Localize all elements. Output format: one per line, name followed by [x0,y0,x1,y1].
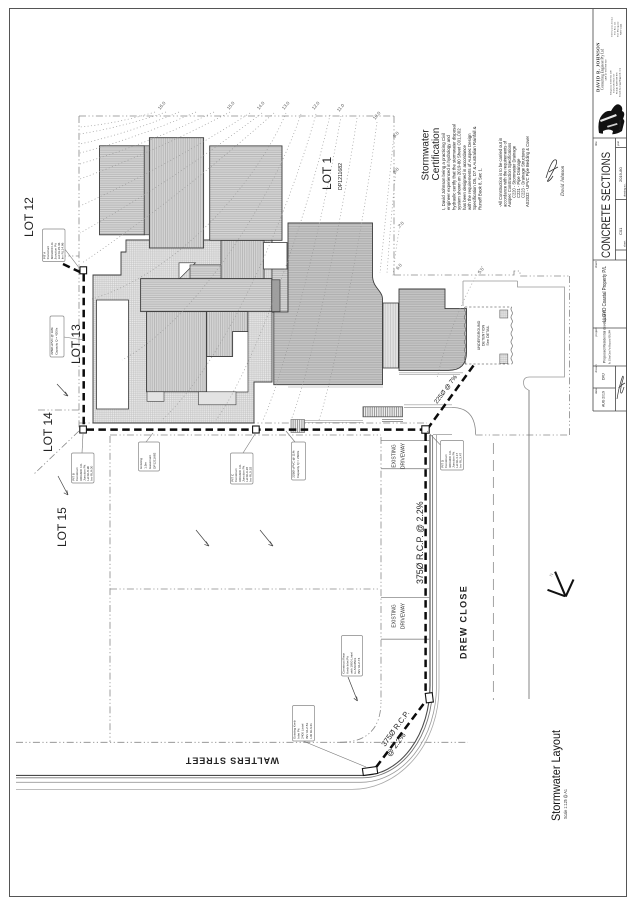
svg-text:title: title [594,141,598,146]
svg-text:Email drj.eng@bigpond.com: Email drj.eng@bigpond.com [619,68,622,97]
svg-text:LID RL3.41: LID RL3.41 [309,723,313,739]
svg-text:Stormwater Layout: Stormwater Layout [549,729,563,821]
svg-text:Easement: Easement [148,455,152,469]
svg-text:DREW CLOSE: DREW CLOSE [459,585,469,659]
svg-text:© Kazora: © Kazora [619,119,622,130]
svg-text:LOT 12: LOT 12 [22,197,36,237]
svg-text:WALTERS STREET: WALTERS STREET [185,756,279,766]
svg-text:DRIVEWAY: DRIVEWAY [401,602,407,629]
svg-text:Capacity Q = 420l/s: Capacity Q = 420l/s [54,327,58,355]
svg-text:Capacity Q = 260l/s: Capacity Q = 260l/s [296,450,300,478]
svg-text:sheet: sheet [623,240,627,247]
svg-text:Inv RL3.47: Inv RL3.47 [459,453,463,468]
svg-text:1.5m: 1.5m [144,461,148,468]
svg-text:Inv RL14.86: Inv RL14.86 [61,242,65,259]
svg-text:375Ø R.C.P. @ 2.2%: 375Ø R.C.P. @ 2.2% [415,501,425,584]
svg-text:year: year [616,141,620,146]
svg-text:David Johnson: David Johnson [561,165,566,197]
svg-text:No. 5 Drew Close, Port Macquar: No. 5 Drew Close, Port Macquarie, NSW, 2… [608,330,612,364]
svg-text:UNDERGROUND: UNDERGROUND [477,320,481,350]
svg-text:Stormwater: Stormwater [421,129,432,181]
svg-text:AS2032 - UPVC Pipe Bedding & C: AS2032 - UPVC Pipe Bedding & Cover [525,135,530,207]
svg-text:LOT 13: LOT 13 [69,324,83,364]
svg-text:AUG 2019: AUG 2019 [602,391,606,407]
svg-text:NSW 2444: NSW 2444 [620,23,623,35]
svg-text:See DETAIL: See DETAIL [486,325,490,345]
svg-text:LOT 15: LOT 15 [55,507,69,547]
svg-text:DRIVEWAY: DRIVEWAY [401,442,407,469]
svg-text:Existing: Existing [139,458,143,469]
svg-text:ABN 47 002 080 020: ABN 47 002 080 020 [605,59,608,81]
svg-text:project: project [594,327,598,336]
svg-text:EXISTING: EXISTING [392,444,398,467]
svg-text:C01: C01 [618,227,623,235]
svg-text:DP1211682: DP1211682 [153,452,157,468]
svg-text:DETENTION: DETENTION [482,325,486,347]
svg-text:CONCRETE SECTIONS: CONCRETE SECTIONS [599,152,613,258]
svg-text:225Ø uPVC @ 11%: 225Ø uPVC @ 11% [292,450,296,478]
svg-text:drawing no.: drawing no. [623,183,627,197]
svg-text:DRJ: DRJ [602,373,606,380]
svg-text:DP1211682: DP1211682 [338,163,344,190]
svg-text:Runoff Book 8, Sec 1.: Runoff Book 8, Sec 1. [477,168,482,210]
svg-text:client: client [594,261,598,268]
svg-text:INV RL2.73: INV RL2.73 [357,658,361,674]
svg-text:Scale 1:125 @ A1: Scale 1:125 @ A1 [563,788,568,819]
svg-text:2019-80: 2019-80 [618,167,623,182]
svg-text:LOT 14: LOT 14 [41,412,55,452]
svg-text:date: date [594,388,598,394]
svg-text:LOT 1: LOT 1 [320,157,334,190]
svg-text:EXISTING: EXISTING [392,604,398,627]
svg-text:Inv RL5.32: Inv RL5.32 [249,467,253,482]
svg-text:Inv RL8.00: Inv RL8.00 [90,466,94,481]
svg-text:Proposed Residential developme: Proposed Residential development [603,310,607,363]
svg-text:drawn: drawn [594,364,598,373]
svg-text:225Ø uPVC @ 16%: 225Ø uPVC @ 16% [50,327,54,355]
